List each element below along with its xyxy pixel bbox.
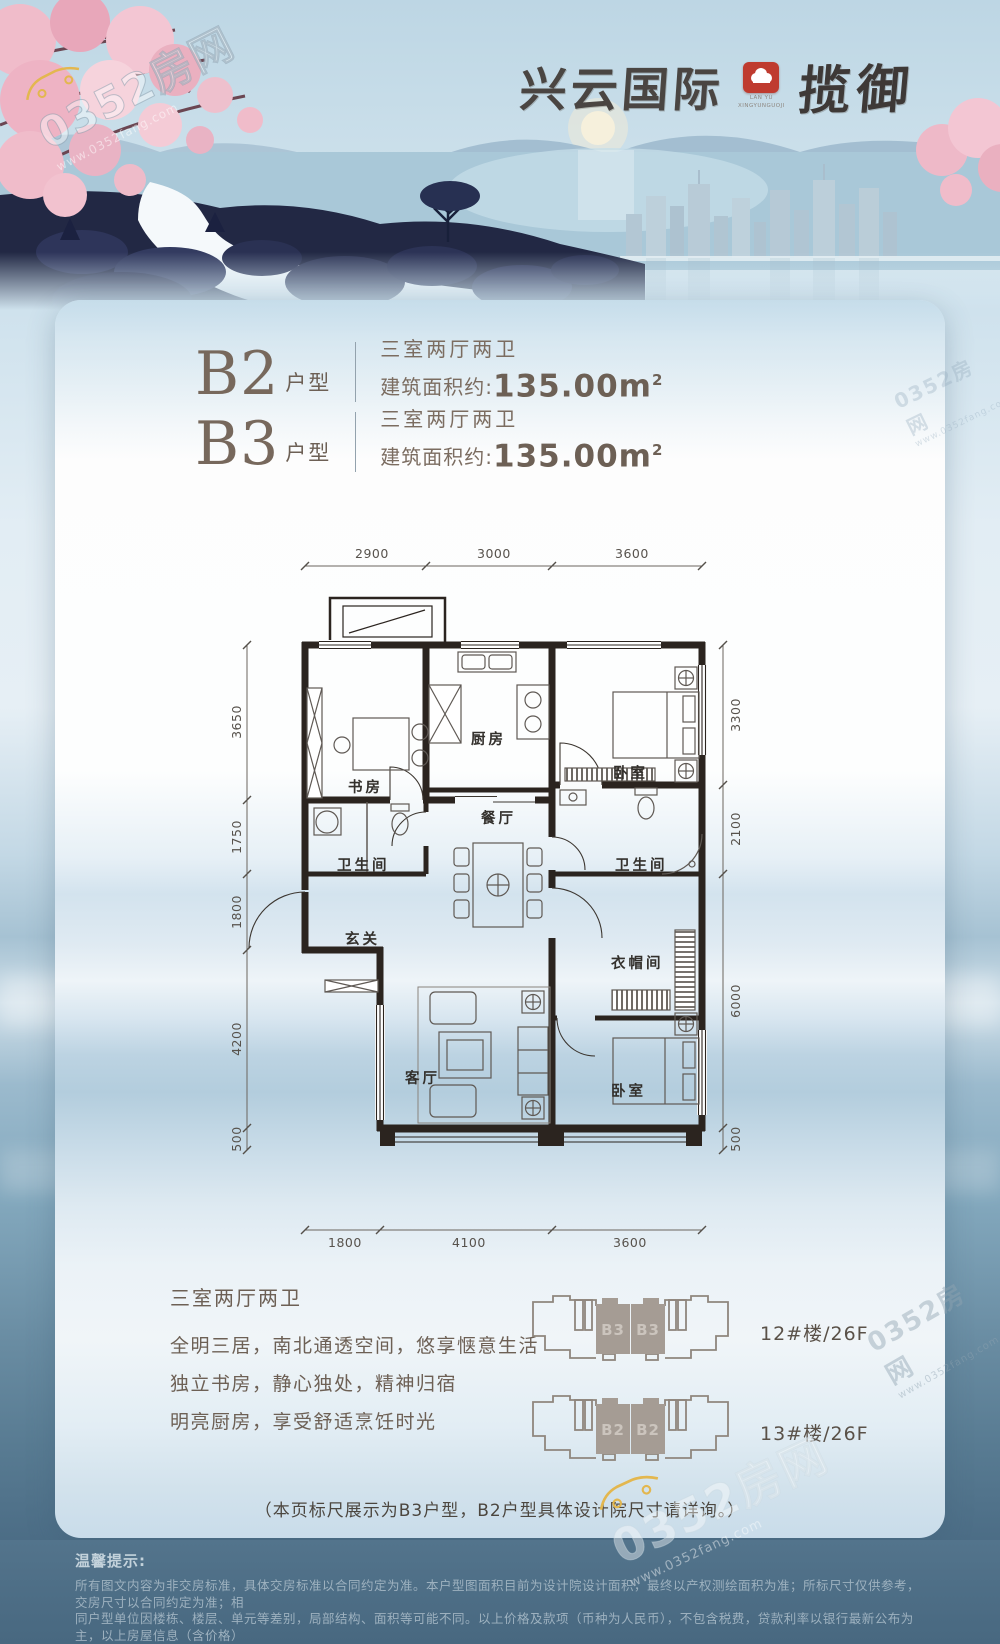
unit-row-b3: B3 户型 三室两厅两卫 建筑面积约: 135.00m2 [195,404,663,474]
bedroom-top-furniture [565,667,699,782]
kitchen-furniture [429,652,549,743]
footer-title: 温馨提示: [75,1550,930,1571]
svg-text:1750: 1750 [229,820,244,854]
walls [302,642,705,1131]
svg-text:500: 500 [229,1126,244,1151]
building-unit-label: B3 [636,1321,660,1339]
room-label-cloak: 衣帽间 [611,954,664,972]
room-label-living: 客厅 [404,1069,440,1087]
feature-line: 独立书房，静心独处，精神归宿 [170,1365,539,1403]
svg-text:1800: 1800 [328,1235,362,1250]
building-unit-label: B2 [601,1421,625,1439]
feature-title: 三室两厅两卫 [170,1282,539,1311]
svg-text:4100: 4100 [452,1235,486,1250]
room-label-bedroom-top: 卧室 [613,764,648,782]
area-prefix: 建筑面积约: [380,371,493,402]
svg-text:3600: 3600 [615,546,649,561]
building-unit-label: B3 [601,1321,625,1339]
area-value: 135.00m2 [493,364,663,402]
unit-code: B3 [195,414,279,474]
building-label-12: 12#楼/26F [760,1319,869,1346]
svg-text:2900: 2900 [355,546,389,561]
living-furniture [418,987,550,1123]
svg-text:3650: 3650 [229,705,244,739]
content-card: B2 户型 三室两厅两卫 建筑面积约: 135.00m2 B3 户型 三室两厅两… [55,300,945,1538]
building-footprint-13: B2 B2 [523,1388,738,1476]
room-label-entry: 玄关 [345,930,380,948]
room-label-kitchen: 厨房 [471,730,506,748]
building-footprint-12: B3 B3 [523,1288,738,1376]
footer-disclaimer: 温馨提示: 所有图文内容为非交房标准，具体交房标准以合同约定为准。本户型图面积目… [0,1540,1000,1644]
red-seal-icon [743,62,779,93]
scale-note: （本页标尺展示为B3户型，B2户型具体设计院尺寸请详询。） [55,1496,945,1521]
building-label-13: 13#楼/26F [760,1419,869,1446]
header-illustration [0,0,1000,310]
area-prefix: 建筑面积约: [380,441,493,472]
feature-line: 全明三居，南北通透空间，悠享惬意生活 [170,1327,539,1365]
unit-code: B2 [195,344,279,404]
svg-text:4200: 4200 [229,1022,244,1056]
divider [355,412,356,472]
room-label-bath-left: 卫生间 [337,856,390,874]
footer-line: 所有图文内容为非交房标准，具体交房标准以合同约定为准。本户型图面积目前为设计院设… [75,1578,930,1611]
building-key-plans: B3 B3 12#楼/26F B2 B2 13#楼/26F [523,1286,869,1486]
furniture [307,652,702,1123]
room-label-bedroom-bottom: 卧室 [611,1082,646,1100]
divider [355,342,356,402]
unit-row-b2: B2 户型 三室两厅两卫 建筑面积约: 135.00m2 [195,334,663,404]
unit-suffix: 户型 [279,367,331,404]
building-unit-label: B2 [636,1421,660,1439]
svg-text:3600: 3600 [613,1235,647,1250]
feature-line: 明亮厨房，享受舒适烹饪时光 [170,1403,539,1441]
svg-text:2100: 2100 [728,812,743,846]
room-label-study: 书房 [348,778,383,796]
dining-furniture [454,843,542,927]
seal-caption-1: LAN YU [750,95,773,101]
area-value: 135.00m2 [493,434,663,472]
svg-text:1800: 1800 [229,895,244,929]
svg-text:6000: 6000 [728,984,743,1018]
seal-caption-2: XINGYUNGUOJI [738,103,785,109]
brand-title: 兴云国际 LAN YU XINGYUNGUOJI 揽御 [520,48,915,123]
unit-rooms: 三室两厅两卫 [380,406,663,432]
svg-text:3000: 3000 [477,546,511,561]
entry-cabinet [325,980,378,992]
building-row-12: B3 B3 12#楼/26F [523,1286,869,1378]
windows [319,640,707,1146]
room-label-dining: 餐厅 [481,809,516,827]
floor-plan: 2900 3000 3600 1800 4100 3600 3650 1750 … [215,540,755,1250]
footer-line: 同户型单位因楼栋、楼层、单元等差别，局部结构、面积等可能不同。以上价格及款项（币… [75,1611,930,1644]
project-subname: 揽御 [795,47,918,124]
unit-rooms: 三室两厅两卫 [380,336,663,362]
svg-text:3300: 3300 [728,698,743,732]
building-row-13: B2 B2 13#楼/26F [523,1386,869,1478]
svg-text:500: 500 [728,1126,743,1151]
feature-text: 三室两厅两卫 全明三居，南北通透空间，悠享惬意生活 独立书房，静心独处，精神归宿… [170,1282,539,1441]
unit-suffix: 户型 [279,437,331,474]
flue-box [330,598,445,645]
room-label-bath-right: 卫生间 [615,856,668,874]
project-name: 兴云国际 [518,51,727,120]
